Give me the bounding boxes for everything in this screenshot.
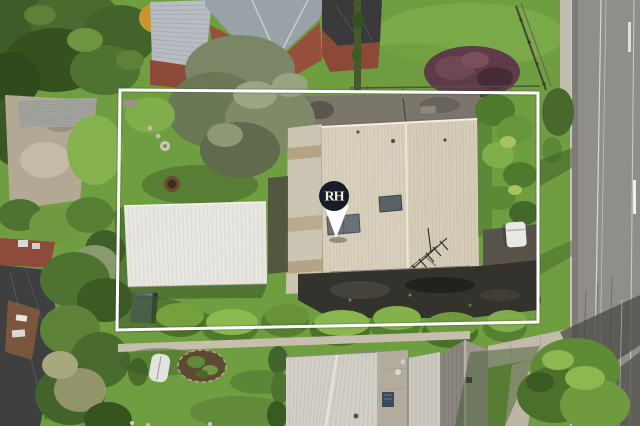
fence-shadow-strip [268,176,288,274]
garden-bench [123,99,138,107]
skylight [379,195,402,212]
left-neighbor-strip [0,95,133,426]
roof-vent [391,139,395,143]
bench [420,106,436,115]
center-line-dash [633,180,636,214]
roof-vent [354,414,359,419]
garden-bed [178,350,226,382]
ac-unit [32,243,40,249]
small-item [395,369,401,375]
bottom-house [286,352,377,426]
aerial-scene: RH [0,0,640,426]
lawn-bright-patch [67,115,123,185]
roof-vent [443,138,446,141]
ac-unit [18,240,28,247]
pin-label: RH [325,190,345,205]
stepping-stone [156,134,161,139]
small-item [401,360,406,365]
stepping-stone [148,126,153,131]
aerial-property-photo: RH [0,0,640,426]
outbuilding-ribs [412,353,436,426]
path-band [287,215,322,232]
pin-shadow [329,237,347,243]
center-line-dash [628,22,631,52]
roof-vent [356,130,359,133]
trademark-dot [346,186,348,188]
white-car [502,221,527,248]
outdoor-chair [12,329,26,337]
